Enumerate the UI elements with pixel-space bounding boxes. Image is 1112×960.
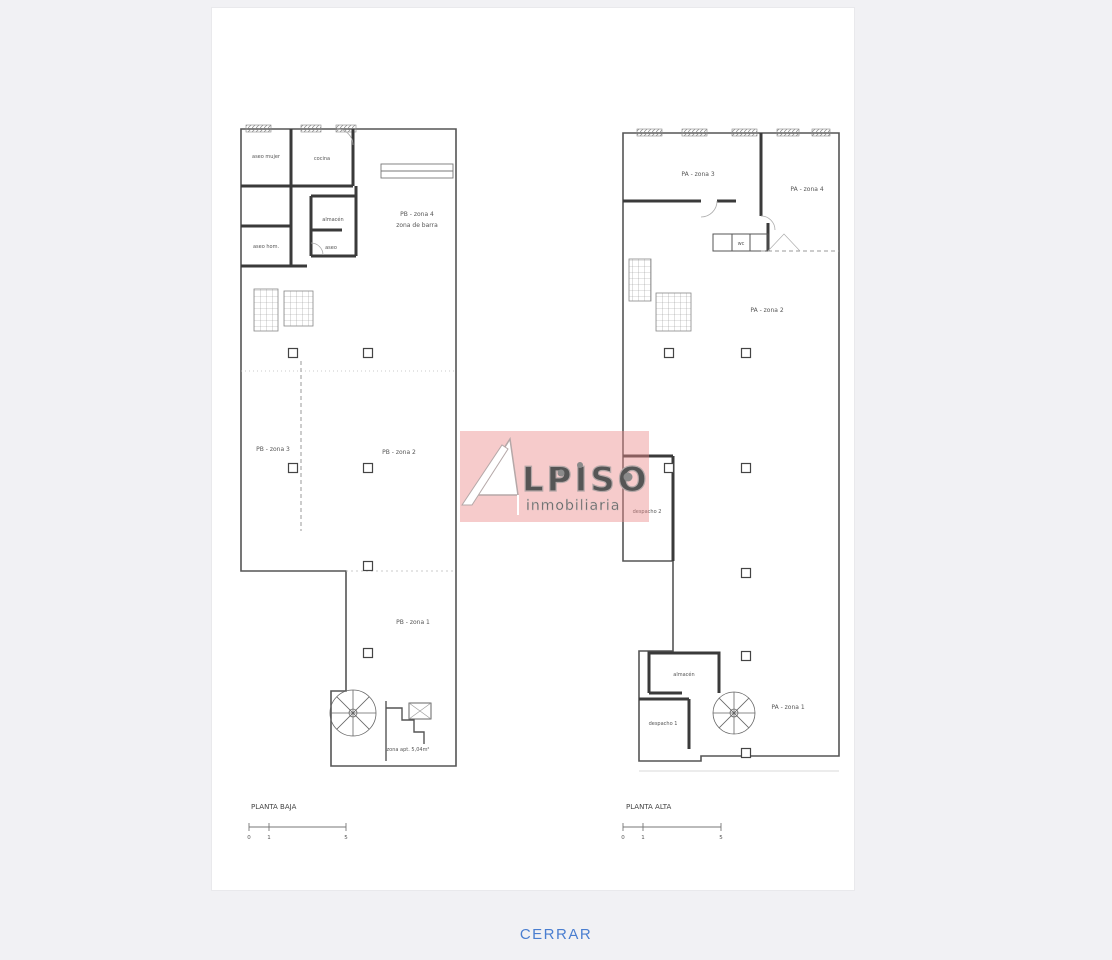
zone-label-pa4: PA - zona 4: [790, 186, 824, 193]
tagline-text: inmobiliaria: [526, 498, 620, 514]
zone-label-pb3: PB - zona 3: [256, 446, 290, 453]
zone-label-pb1: PB - zona 1: [396, 619, 430, 626]
lightbox-footer: CERRAR: [0, 926, 1112, 944]
floorplan-image: aseo mujer cocina almacén aseo aseo hom.…: [211, 7, 855, 891]
plan-title-baja: PLANTA BAJA: [251, 803, 297, 811]
window-hatches: [246, 125, 356, 132]
plan-planta-alta: wc: [621, 129, 839, 841]
stairs: [629, 259, 691, 331]
room-label-aseo-mujer: aseo mujer: [252, 154, 281, 160]
stairs: [254, 289, 313, 331]
room-label-wc: wc: [738, 241, 745, 247]
agency-watermark: LPISO inmobiliaria: [460, 431, 649, 522]
scale-bar: [249, 823, 346, 831]
close-link[interactable]: CERRAR: [520, 926, 592, 943]
zone-label-pa2: PA - zona 2: [750, 307, 784, 314]
door-arcs: [311, 129, 353, 255]
bar-counter: [381, 164, 453, 178]
guide-lines: [241, 361, 456, 571]
spiral-staircase: [330, 690, 376, 736]
zone-label-pb4-line2: zona de barra: [396, 222, 438, 229]
scale-tick-1: 1: [641, 835, 645, 841]
walls-outer: [623, 133, 839, 761]
logo-letter-a-icon: [462, 439, 518, 515]
room-label-cocina: cocina: [314, 156, 330, 162]
room-label-aseo-hom: aseo hom.: [253, 244, 279, 250]
zone-label-pb2: PB - zona 2: [382, 449, 416, 456]
scale-tick-0: 0: [621, 835, 625, 841]
zone-label-pa1: PA - zona 1: [771, 704, 805, 711]
room-label-almacen: almacén: [322, 216, 343, 223]
room-label-despacho1: despacho 1: [649, 721, 678, 727]
scale-tick-0: 0: [247, 835, 251, 841]
zone-label-pb4-line1: PB - zona 4: [400, 211, 434, 218]
scale-bar: [623, 823, 721, 831]
zone-label-pa3: PA - zona 3: [681, 171, 715, 178]
columns: [665, 349, 751, 758]
scale-tick-5: 5: [719, 835, 723, 841]
alpiso-logo: LPISO inmobiliaria: [460, 431, 649, 522]
room-label-aseo: aseo: [325, 245, 337, 251]
plan-planta-baja: aseo mujer cocina almacén aseo aseo hom.…: [241, 125, 456, 841]
spiral-staircase: [713, 692, 755, 734]
room-label-almacen-alta: almacén: [673, 671, 694, 678]
scale-tick-5: 5: [344, 835, 348, 841]
plan-title-alta: PLANTA ALTA: [626, 803, 672, 811]
scale-tick-1: 1: [267, 835, 271, 841]
note-label: zona apt. 5,04m²: [387, 747, 430, 753]
